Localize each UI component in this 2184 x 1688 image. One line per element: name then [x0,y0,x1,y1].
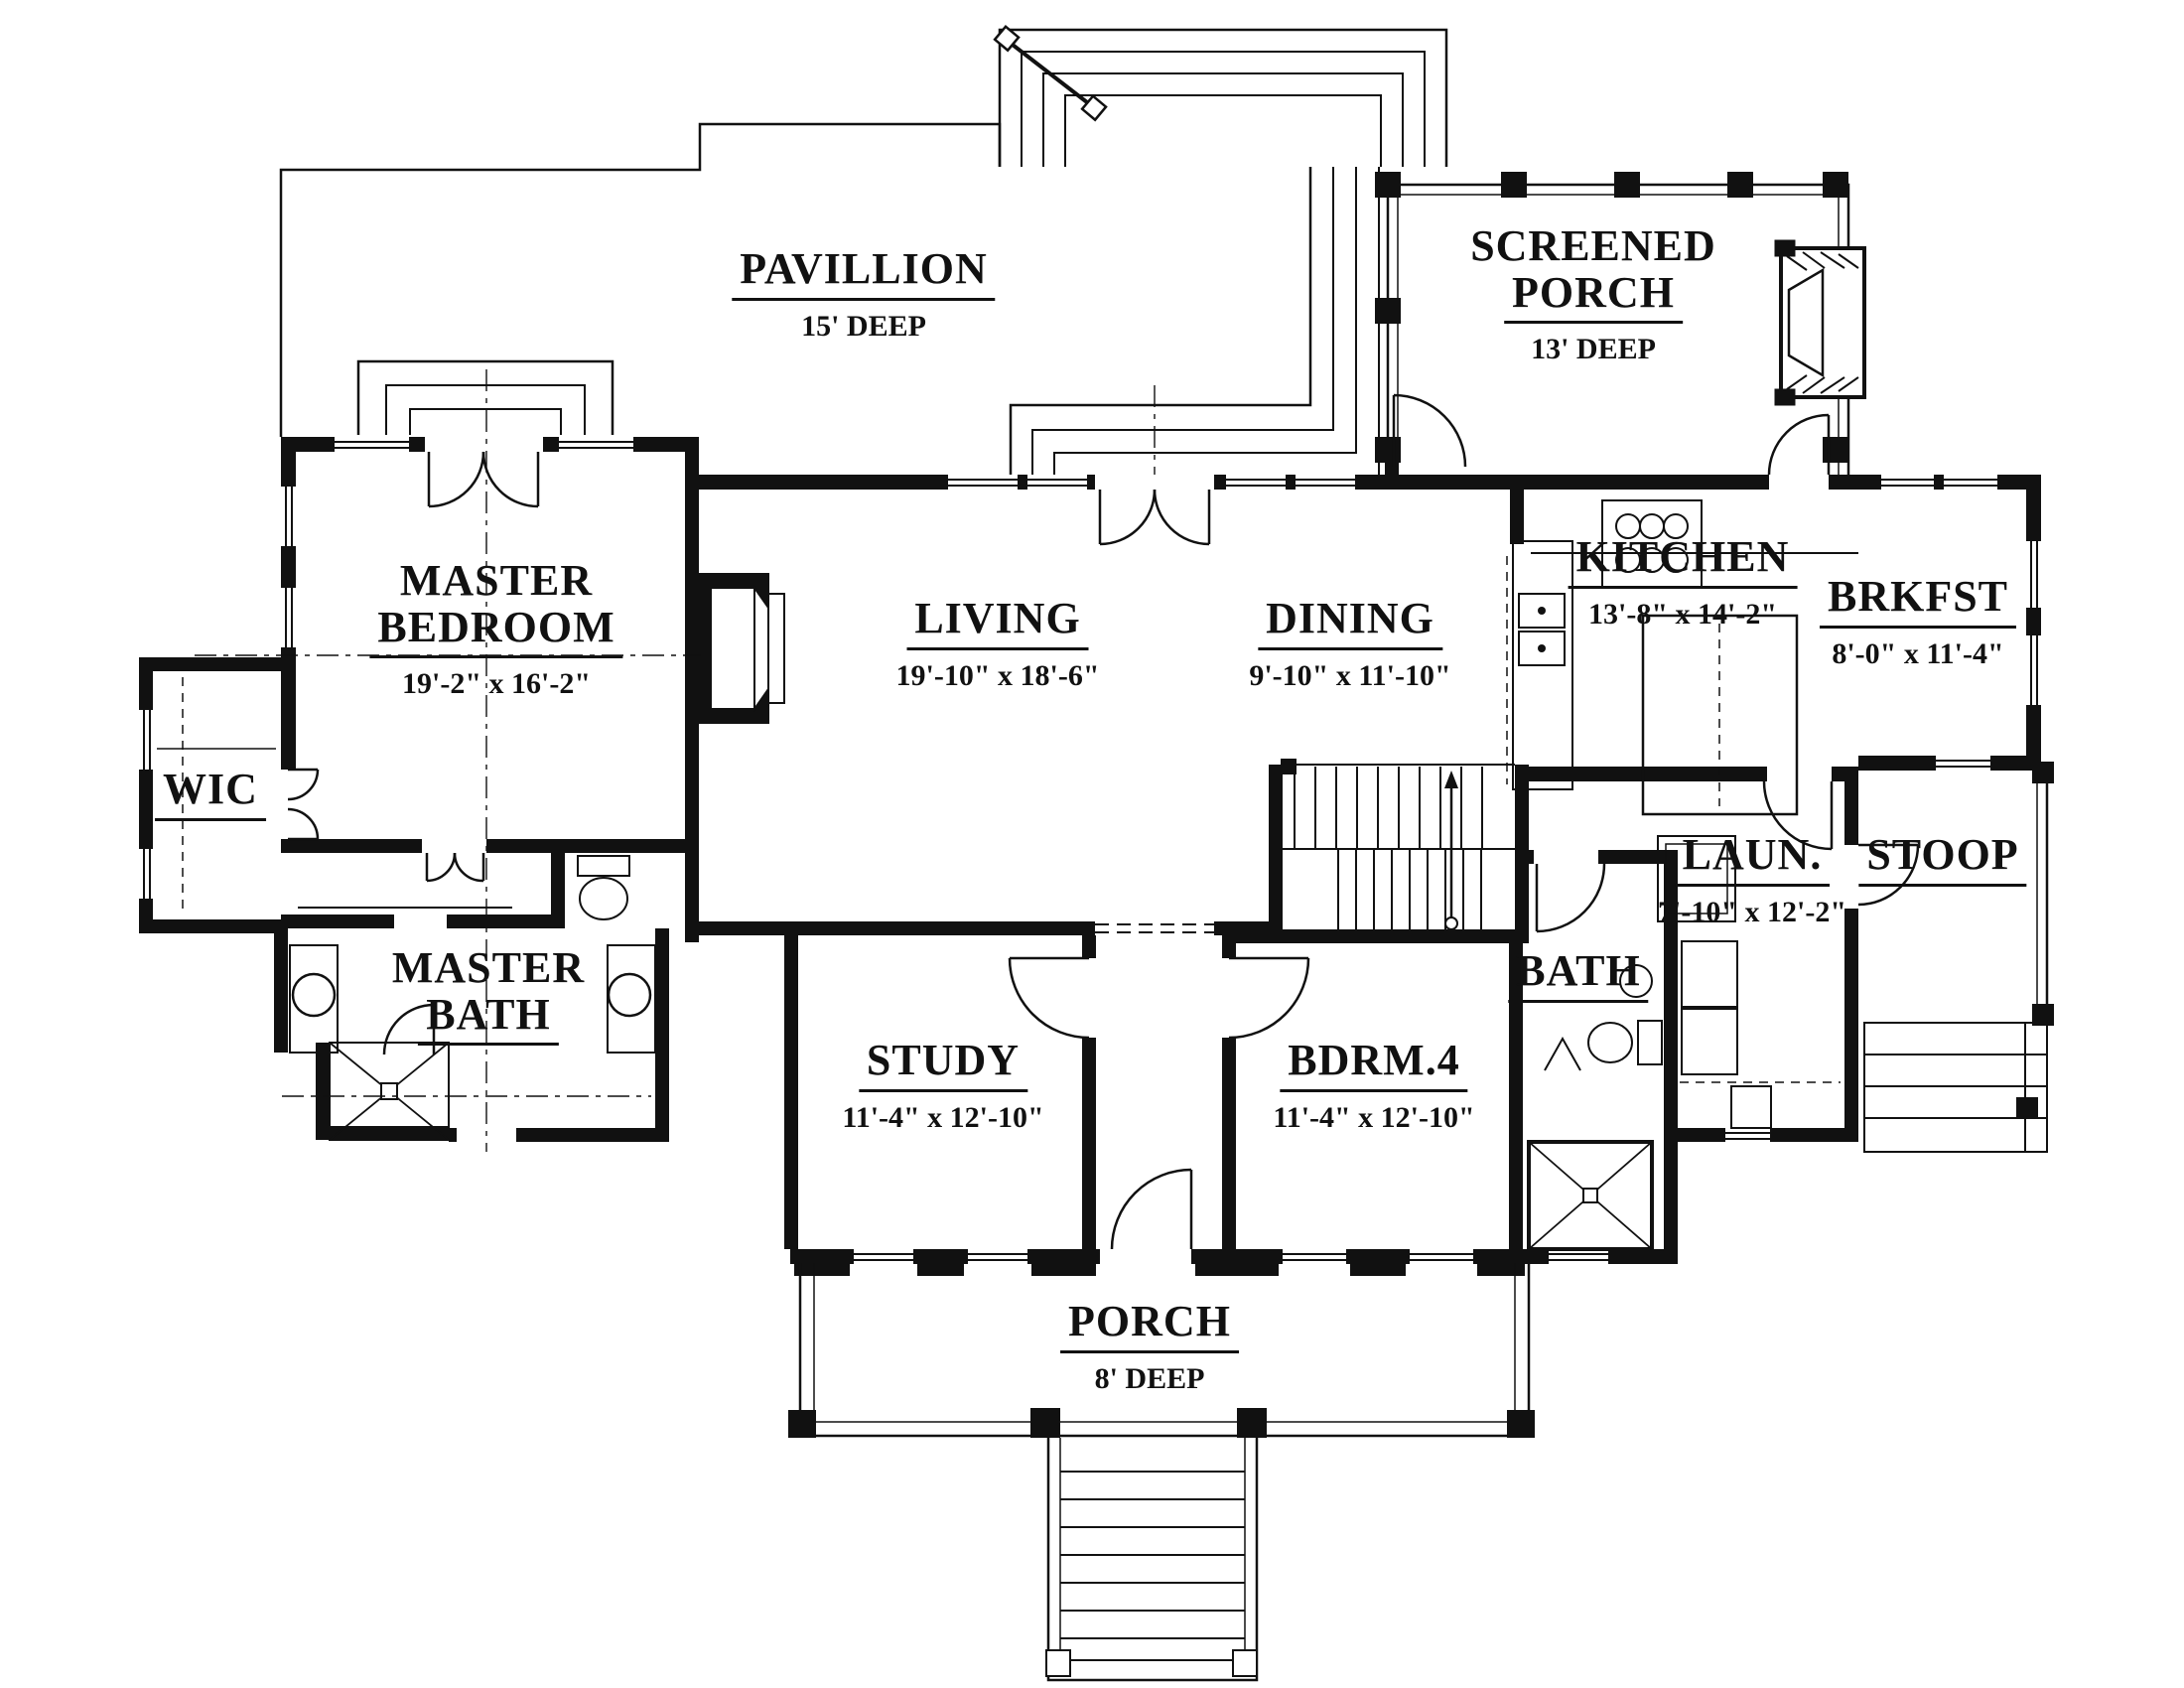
room-name: MASTER [392,945,585,992]
room-label-brkfst: BRKFST 8'-0" x 11'-4" [1820,574,2016,671]
room-label-bdrm4: BDRM.4 11'-4" x 12'-10" [1273,1038,1474,1135]
room-label-dining: DINING 9'-10" x 11'-10" [1249,596,1450,693]
room-name: KITCHEN [1569,534,1798,589]
bath-shower [1529,1142,1652,1249]
master-shower [330,1043,449,1140]
room-name: PORCH [1060,1299,1239,1353]
floor-plan-drawing [0,0,2184,1688]
room-dims: 8'-0" x 11'-4" [1820,629,2016,671]
room-name: BATH [1508,948,1648,1003]
room-dims: 15' DEEP [732,301,995,344]
porch-steps [1046,1438,1257,1680]
room-dims: 13' DEEP [1470,324,1716,366]
room-label-study: STUDY 11'-4" x 12'-10" [842,1038,1043,1135]
living-fireplace [699,574,784,723]
room-label-stoop: STOOP [1858,832,2026,887]
room-name: STUDY [859,1038,1027,1092]
room-name: PAVILLION [732,246,995,301]
room-label-living: LIVING 19'-10" x 18'-6" [896,596,1100,693]
room-name: LAUN. [1675,832,1831,887]
room-dims: 7'-10" x 12'-2" [1658,887,1846,929]
room-label-wic: WIC [155,767,266,821]
centerlines [195,369,1155,1152]
room-name: STOOP [1858,832,2026,887]
floor-plan-page: PAVILLION 15' DEEP SCREENED PORCH 13' DE… [0,0,2184,1688]
outdoor-fireplace [1775,240,1864,405]
room-label-laundry: LAUN. 7'-10" x 12'-2" [1658,832,1846,929]
room-name: BRKFST [1820,574,2016,629]
room-label-master-bath: MASTER BATH [392,945,585,1046]
staircase [1283,765,1515,929]
porch-structure [788,763,2053,1680]
room-name: MASTER [369,558,622,605]
room-dims: 11'-4" x 12'-10" [1273,1092,1474,1135]
room-name: SCREENED [1470,223,1716,270]
room-label-pavillion: PAVILLION 15' DEEP [732,246,995,344]
room-dims: 13'-8" x 14'-2" [1569,589,1798,632]
room-name: LIVING [906,596,1088,650]
room-name: BDRM.4 [1280,1038,1467,1092]
room-dims: 19'-2" x 16'-2" [369,658,622,701]
room-label-screened-porch: SCREENED PORCH 13' DEEP [1470,223,1716,366]
room-dims: 19'-10" x 18'-6" [896,650,1100,693]
room-label-porch: PORCH 8' DEEP [1060,1299,1239,1396]
room-dims: 11'-4" x 12'-10" [842,1092,1043,1135]
room-name: DINING [1258,596,1442,650]
room-label-bath: BATH [1508,948,1648,1003]
room-name: WIC [155,767,266,821]
room-dims: 8' DEEP [1060,1353,1239,1396]
stoop-structure [1864,763,2053,1152]
room-label-master-bedroom: MASTER BEDROOM 19'-2" x 16'-2" [369,558,622,701]
room-label-kitchen: KITCHEN 13'-8" x 14'-2" [1569,534,1798,632]
room-dims: 9'-10" x 11'-10" [1249,650,1450,693]
